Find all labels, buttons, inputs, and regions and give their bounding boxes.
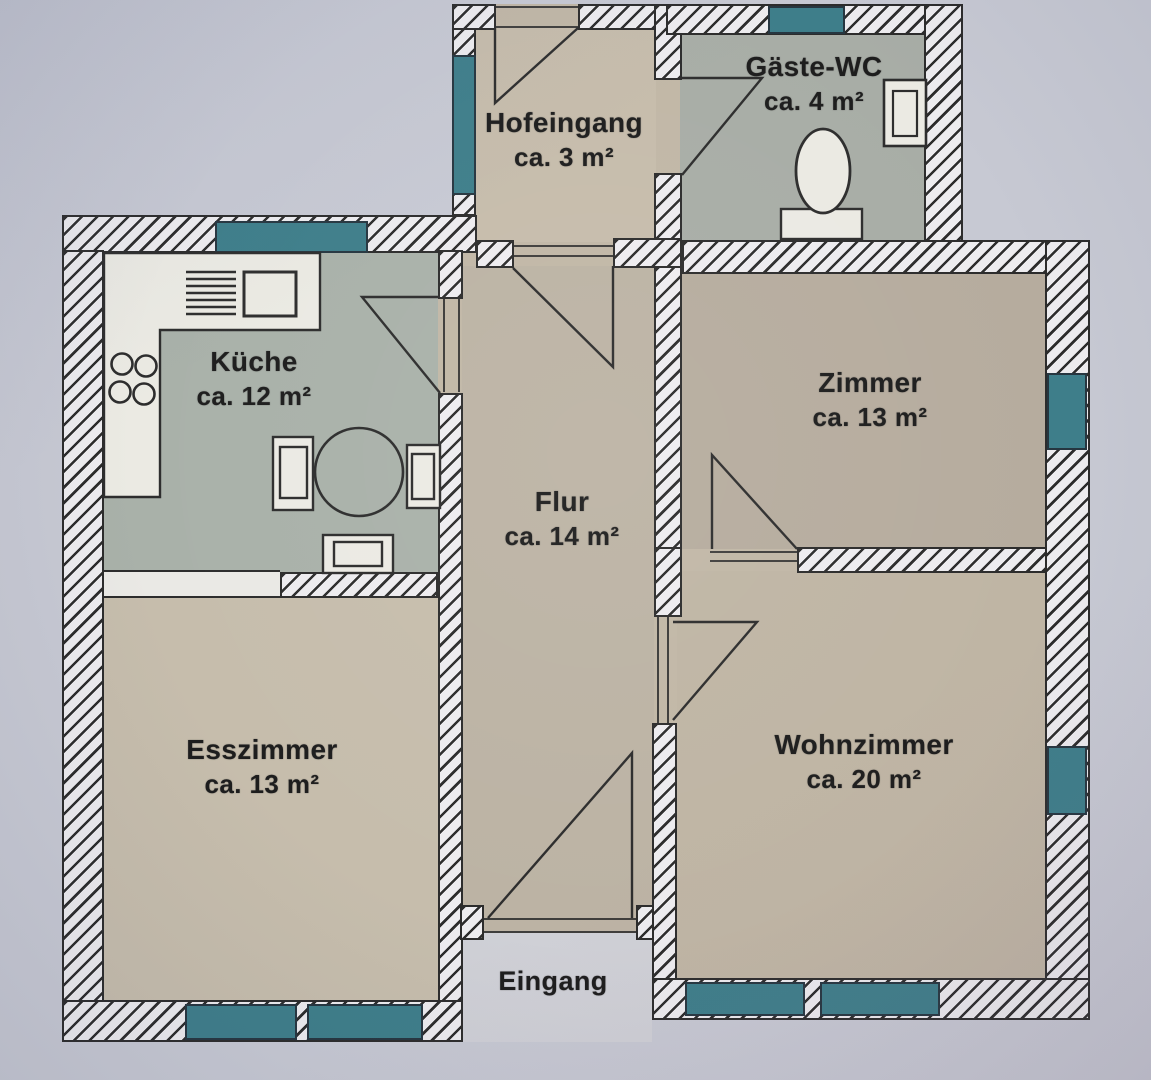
room-name: Wohnzimmer	[774, 728, 953, 762]
wall-right	[1045, 240, 1090, 1020]
window-kueche-top	[215, 221, 368, 253]
window-wohnzimmer-right	[1047, 746, 1087, 815]
wall-kueche-flur-stub	[438, 250, 463, 299]
room-flur-label: Flur ca. 14 m²	[505, 485, 620, 553]
room-area: ca. 14 m²	[505, 519, 620, 553]
wall-left	[62, 250, 104, 1042]
room-name: Hofeingang	[485, 106, 643, 140]
entrance-label: Eingang	[498, 967, 607, 995]
floor-plan-canvas: Hofeingang ca. 3 m² Gäste-WC ca. 4 m² Kü…	[0, 0, 1151, 1080]
room-flur-floor	[462, 266, 654, 933]
wall-under-hof-right	[613, 238, 682, 268]
wall-eingang-stub-right	[636, 905, 654, 940]
window-wc-top	[768, 6, 845, 34]
room-name: Zimmer	[813, 366, 928, 400]
wall-wc-right	[924, 4, 963, 244]
room-area: ca. 12 m²	[197, 379, 312, 413]
wall-flur-step	[654, 547, 682, 617]
wall-annex-top-right	[578, 4, 666, 30]
room-name: Gäste-WC	[746, 50, 883, 84]
wall-flur-zimmer	[654, 266, 682, 549]
wall-under-hof-left	[476, 240, 514, 268]
window-zimmer-right	[1047, 373, 1087, 450]
outside-top-right-patch	[963, 215, 1090, 242]
room-esszimmer-label: Esszimmer ca. 13 m²	[186, 733, 337, 801]
window-hofeingang-left	[452, 55, 476, 195]
room-name: Küche	[197, 345, 312, 379]
wall-main-top-right	[682, 240, 1090, 274]
room-gaeste-wc-label: Gäste-WC ca. 4 m²	[746, 50, 883, 118]
wall-zimmer-bottom	[797, 547, 1047, 573]
kueche-esszimmer-passage	[104, 570, 280, 598]
room-area: ca. 13 m²	[186, 767, 337, 801]
room-hofeingang-label: Hofeingang ca. 3 m²	[485, 106, 643, 174]
room-kueche-label: Küche ca. 12 m²	[197, 345, 312, 413]
room-name: Flur	[505, 485, 620, 519]
entrance-text: Eingang	[498, 967, 607, 995]
room-zimmer-label: Zimmer ca. 13 m²	[813, 366, 928, 434]
window-esszimmer-bottom-2	[307, 1004, 423, 1040]
window-esszimmer-bottom-1	[185, 1004, 297, 1040]
wall-annex-top-left	[452, 4, 496, 30]
wall-hof-wc-lower	[654, 173, 682, 242]
window-wohnzimmer-bottom-2	[820, 982, 940, 1016]
room-name: Esszimmer	[186, 733, 337, 767]
room-kueche-floor	[104, 253, 438, 575]
window-wohnzimmer-bottom-1	[685, 982, 805, 1016]
wall-flur-right-long	[438, 393, 463, 1042]
wall-flur-wohnzimmer-lower	[652, 723, 677, 1018]
room-area: ca. 13 m²	[813, 400, 928, 434]
wall-kueche-esszimmer	[280, 572, 438, 598]
wall-eingang-stub-left	[460, 905, 484, 940]
room-wohnzimmer-label: Wohnzimmer ca. 20 m²	[774, 728, 953, 796]
outside-bottom-right-patch	[652, 1020, 1090, 1042]
room-area: ca. 20 m²	[774, 762, 953, 796]
room-area: ca. 4 m²	[746, 84, 883, 118]
room-area: ca. 3 m²	[485, 140, 643, 174]
